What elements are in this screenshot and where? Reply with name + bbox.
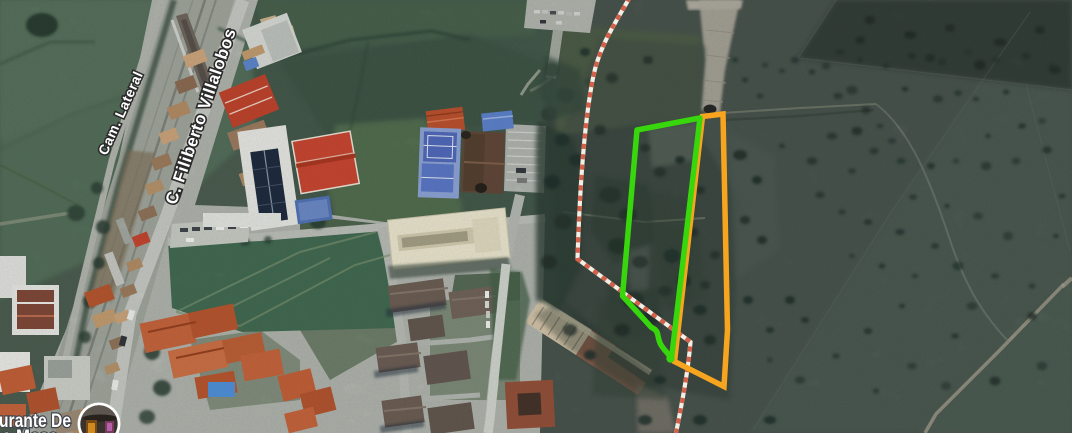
svg-text:a Mesa: a Mesa — [2, 427, 58, 433]
